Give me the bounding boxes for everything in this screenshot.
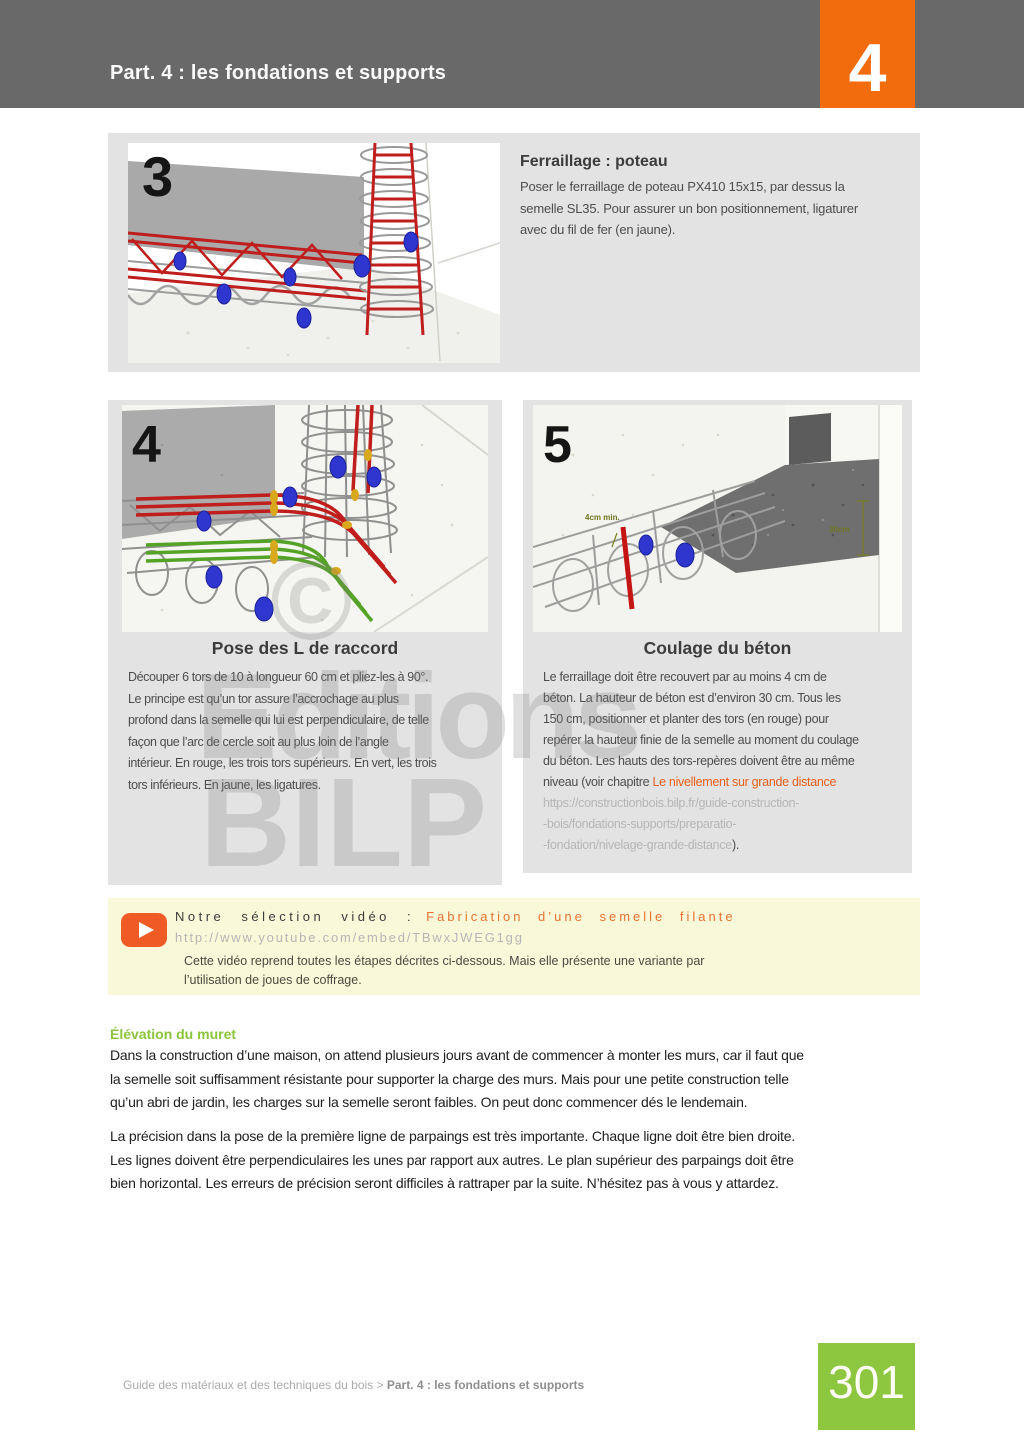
text-line: Découper 6 tors de 10 à longueur 60 cm e… — [128, 670, 436, 692]
text-line: du béton. Les hauts des tors-repères doi… — [543, 754, 859, 775]
text-line: façon que l’arc de cercle soit au plus l… — [128, 735, 436, 757]
step3-illustration — [128, 143, 500, 363]
chapter-link-url[interactable]: https://constructionbois.bilp.fr/guide-c… — [543, 796, 859, 817]
text-line: Cette vidéo reprend toutes les étapes dé… — [184, 954, 704, 973]
elevation-heading: Élévation du muret — [110, 1026, 236, 1042]
text-line: 150 cm, positionner et planter des tors … — [543, 712, 859, 733]
step5-caption: Coulage du béton — [523, 638, 912, 659]
step4-text: Découper 6 tors de 10 à longueur 60 cm e… — [128, 670, 436, 799]
page-title: Part. 4 : les fondations et supports — [110, 62, 446, 85]
video-description: Cette vidéo reprend toutes les étapes dé… — [184, 954, 704, 991]
elevation-paragraph-1: Dans la construction d’une maison, on at… — [110, 1047, 804, 1118]
chapter-number: 4 — [849, 34, 887, 102]
chapter-link-url[interactable]: -fondation/nivelage-grande-distance — [543, 838, 732, 852]
chapter-number-box: 4 — [820, 0, 915, 108]
step5-section: 5 4cm min. 30cm Coulage du béton Le ferr… — [523, 400, 912, 873]
video-url-link[interactable]: http://www.youtube.com/embed/TBwxJWEG1gg — [175, 930, 524, 945]
text-line: tors inférieurs. En jaune, les ligatures… — [128, 778, 436, 800]
text-line: Le principe est qu’un tor assure l’accro… — [128, 692, 436, 714]
text-line: Dans la construction d’une maison, on at… — [110, 1047, 804, 1071]
text-line: Poser le ferraillage de poteau PX410 15x… — [520, 179, 858, 201]
chapter-link[interactable]: Le nivellement sur grande distance — [652, 775, 836, 789]
text-line: bien horizontal. Les erreurs de précisio… — [110, 1175, 795, 1199]
breadcrumb: Guide des matériaux et des techniques du… — [123, 1378, 584, 1392]
step5-photo: 5 4cm min. 30cm — [533, 405, 902, 632]
step3-heading: Ferraillage : poteau — [520, 153, 668, 171]
video-heading: Notre sélection vidéo :Fabrication d’une… — [175, 909, 736, 924]
video-selection-box: Notre sélection vidéo :Fabrication d’une… — [108, 898, 920, 995]
text-line: la semelle soit suffisamment résistante … — [110, 1071, 804, 1095]
text-suffix: ). — [732, 838, 739, 852]
step3-text: Poser le ferraillage de poteau PX410 15x… — [520, 179, 858, 244]
youtube-play-icon[interactable] — [121, 913, 167, 947]
link-prefix: niveau (voir chapitre — [543, 775, 652, 789]
text-line: profond dans la semelle qui lui est perp… — [128, 713, 436, 735]
text-line: intérieur. En rouge, les trois tors supé… — [128, 756, 436, 778]
text-line: -fondation/nivelage-grande-distance). — [543, 838, 859, 859]
text-line: Les lignes doivent être perpendiculaires… — [110, 1152, 795, 1176]
step5-text: Le ferraillage doit être recouvert par a… — [543, 670, 859, 859]
step4-photo: 4 — [122, 405, 488, 632]
dimension-label-4cm: 4cm min. — [585, 513, 620, 522]
text-line: avec du fil de fer (en jaune). — [520, 222, 858, 244]
video-label: Notre sélection vidéo : — [175, 909, 414, 924]
video-title-link[interactable]: Fabrication d’une semelle filante — [426, 909, 735, 924]
elevation-paragraph-2: La précision dans la pose de la première… — [110, 1128, 795, 1199]
step3-number: 3 — [142, 149, 173, 205]
text-line: repérer la hauteur finie de la semelle a… — [543, 733, 859, 754]
breadcrumb-prefix: Guide des matériaux et des techniques du… — [123, 1378, 387, 1392]
page-number: 301 — [828, 1359, 905, 1430]
text-line: qu’un abri de jardin, les charges sur la… — [110, 1094, 804, 1118]
text-line: Le ferraillage doit être recouvert par a… — [543, 670, 859, 691]
step5-number: 5 — [543, 419, 572, 471]
text-line: l’utilisation de joues de coffrage. — [184, 973, 704, 992]
step4-section: 4 Pose des L de raccord Découper 6 tors … — [108, 400, 502, 885]
dimension-label-30cm: 30cm — [829, 525, 849, 534]
chapter-link-url[interactable]: -bois/fondations-supports/preparatio- — [543, 817, 859, 838]
breadcrumb-current: Part. 4 : les fondations et supports — [387, 1378, 584, 1392]
document-page: Part. 4 : les fondations et supports 4 — [0, 0, 1024, 1436]
step4-number: 4 — [132, 419, 161, 471]
page-number-box: 301 — [818, 1343, 915, 1430]
step4-caption: Pose des L de raccord — [108, 638, 502, 659]
text-line: béton. La hauteur de béton est d’environ… — [543, 691, 859, 712]
text-line: semelle SL35. Pour assurer un bon positi… — [520, 201, 858, 223]
text-line: niveau (voir chapitre Le nivellement sur… — [543, 775, 859, 796]
step4-illustration — [122, 405, 488, 632]
text-line: La précision dans la pose de la première… — [110, 1128, 795, 1152]
step3-photo: 3 — [128, 143, 500, 363]
step3-section: 3 Ferraillage : poteau Poser le ferraill… — [108, 133, 920, 372]
